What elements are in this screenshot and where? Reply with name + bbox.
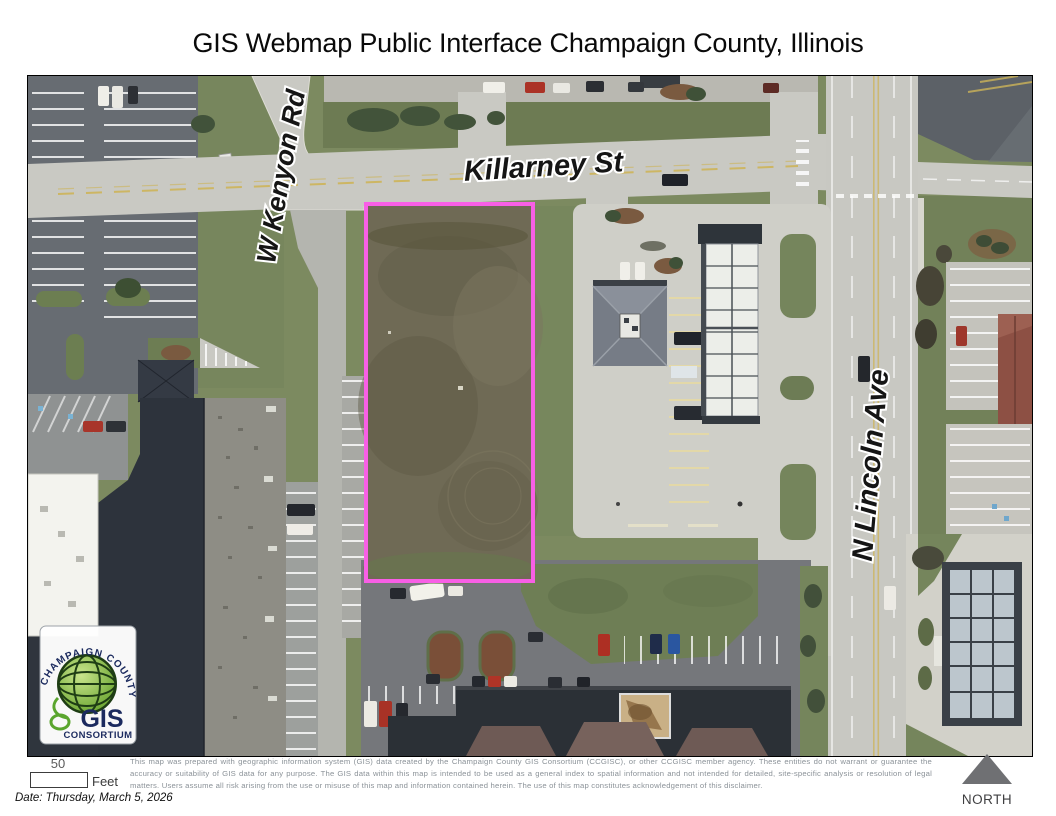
north-arrow: NORTH (956, 752, 1018, 807)
page-title: GIS Webmap Public Interface Champaign Co… (0, 28, 1056, 59)
scale-bar (30, 772, 88, 788)
north-arrow-icon (956, 752, 1018, 786)
scale-bar-unit: Feet (92, 774, 118, 789)
scale-bar-value: 50 (30, 756, 86, 771)
parcel-area (358, 204, 543, 584)
logo-acronym: GIS (80, 705, 123, 733)
disclaimer-text: This map was prepared with geographic in… (130, 756, 932, 791)
logo-org: CONSORTIUM (64, 730, 133, 741)
map-date: Date: Thursday, March 5, 2026 (15, 792, 173, 804)
north-label: NORTH (956, 792, 1018, 807)
map-canvas[interactable]: W Kenyon Rd Killarney St N Lincoln Ave C… (27, 75, 1033, 757)
aerial-map[interactable]: W Kenyon Rd Killarney St N Lincoln Ave C… (28, 76, 1032, 756)
gis-consortium-logo: CHAMPAIGN COUNTY GIS CONSORTIUM (39, 626, 137, 744)
